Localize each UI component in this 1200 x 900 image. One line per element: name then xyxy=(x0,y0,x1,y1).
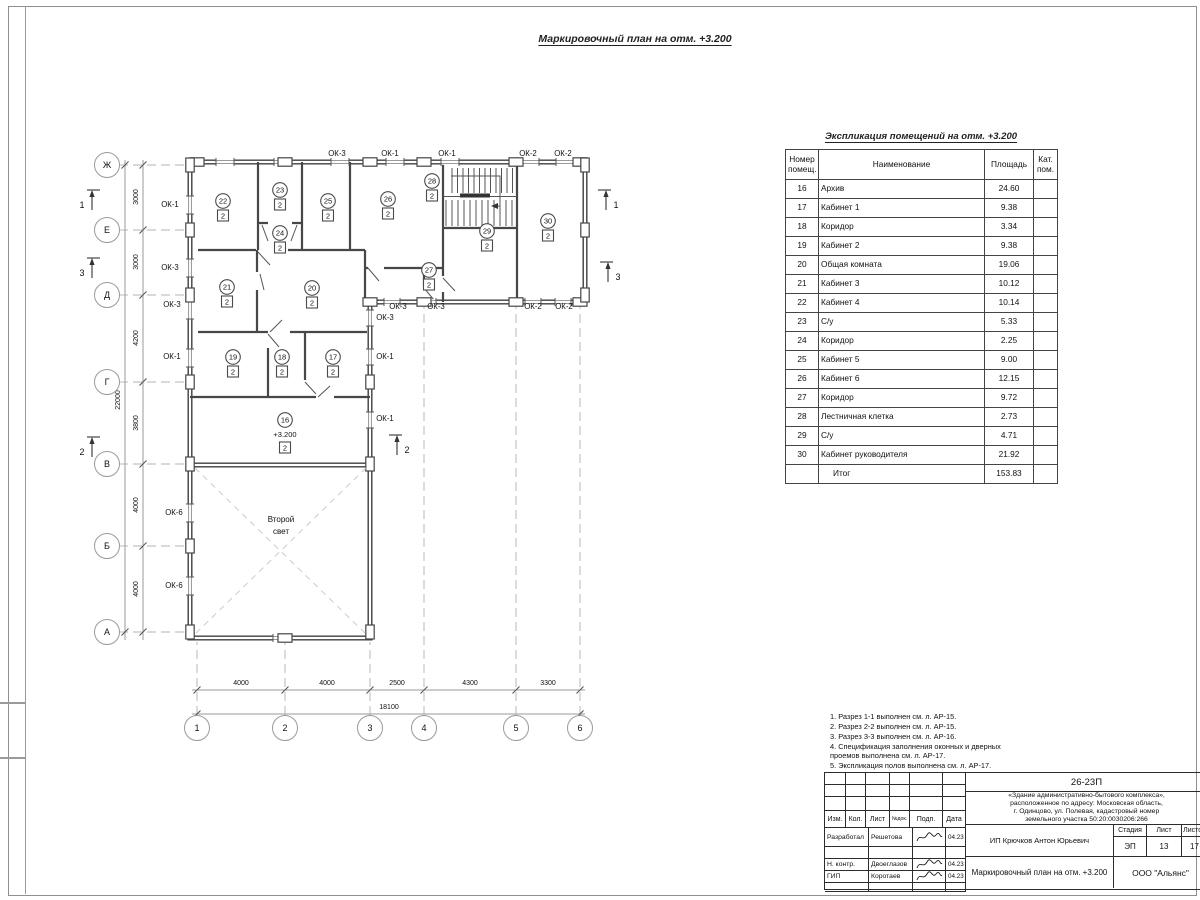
empty-cell xyxy=(866,797,890,811)
table-cell: 9.72 xyxy=(985,389,1034,408)
table-cell: 24 xyxy=(786,332,819,351)
table-row: 18Коридор3.34 xyxy=(786,218,1058,237)
table-cell: 20 xyxy=(786,256,819,275)
table-cell: Кабинет руководителя xyxy=(819,446,985,465)
table-cell: 29 xyxy=(786,427,819,446)
table-cell: 2.25 xyxy=(985,332,1034,351)
table-cell: 22 xyxy=(786,294,819,313)
date-cell xyxy=(946,883,966,892)
signature-cell xyxy=(913,859,946,871)
date-cell: 04.23 xyxy=(946,859,966,871)
signature-icon xyxy=(915,871,943,882)
project-code: 26-23П xyxy=(966,773,1200,792)
table-cell xyxy=(1034,427,1058,446)
table-cell: 9.00 xyxy=(985,351,1034,370)
table-cell xyxy=(1034,370,1058,389)
empty-cell xyxy=(825,785,846,797)
table-cell: 18 xyxy=(786,218,819,237)
explication-table: Номер помещ. Наименование Площадь Кат. п… xyxy=(785,149,1058,484)
empty-cell xyxy=(943,797,966,811)
table-cell: 23 xyxy=(786,313,819,332)
header-cell-number: Номер помещ. xyxy=(786,150,819,180)
stage-label: Стадия xyxy=(1114,825,1147,837)
table-cell: Архив xyxy=(819,180,985,199)
col-izm: Изм. xyxy=(825,811,846,828)
sheets-label: Листов xyxy=(1182,825,1200,837)
empty-cell xyxy=(825,773,846,785)
table-row: 25Кабинет 59.00 xyxy=(786,351,1058,370)
empty-cell xyxy=(943,773,966,785)
title-block-signatures: Изм. Кол. Лист №док. Подп. Дата Разработ… xyxy=(825,773,966,888)
empty-cell xyxy=(866,785,890,797)
stage-value: ЭП xyxy=(1114,837,1147,857)
table-cell xyxy=(1034,199,1058,218)
empty-cell xyxy=(846,773,866,785)
table-cell xyxy=(1034,218,1058,237)
table-cell xyxy=(1034,294,1058,313)
table-cell: Кабинет 4 xyxy=(819,294,985,313)
empty-cell xyxy=(910,797,943,811)
table-cell xyxy=(1034,237,1058,256)
title-block-info: 26-23П «Здание административно-бытового … xyxy=(966,773,1200,888)
table-cell: 19.06 xyxy=(985,256,1034,275)
table-cell xyxy=(786,465,819,484)
table-row: 26Кабинет 612.15 xyxy=(786,370,1058,389)
signature-cell xyxy=(913,828,946,847)
table-cell: 16 xyxy=(786,180,819,199)
table-cell: 19 xyxy=(786,237,819,256)
table-cell: 28 xyxy=(786,408,819,427)
table-row: 23С/у5.33 xyxy=(786,313,1058,332)
header-cell-area: Площадь xyxy=(985,150,1034,180)
table-cell: 24.60 xyxy=(985,180,1034,199)
table-cell: 17 xyxy=(786,199,819,218)
table-cell: Кабинет 6 xyxy=(819,370,985,389)
explication-title: Экспликация помещений на отм. +3.200 xyxy=(785,131,1057,142)
table-row: 28Лестничная клетка2.73 xyxy=(786,408,1058,427)
signature-cell xyxy=(913,883,946,892)
table-cell: 30 xyxy=(786,446,819,465)
empty-cell xyxy=(910,785,943,797)
signature-icon xyxy=(915,859,943,870)
explication: Экспликация помещений на отм. +3.200 Ном… xyxy=(785,131,1057,484)
trim-mark xyxy=(0,757,25,759)
date-cell xyxy=(946,847,966,859)
table-cell xyxy=(1034,313,1058,332)
table-cell: С/у xyxy=(819,427,985,446)
trim-mark xyxy=(0,702,25,704)
title-block: Изм. Кол. Лист №док. Подп. Дата Разработ… xyxy=(824,772,1200,890)
table-row: 19Кабинет 29.38 xyxy=(786,237,1058,256)
name-cell: Решетова xyxy=(869,828,913,847)
empty-cell xyxy=(890,773,910,785)
date-cell: 04.23 xyxy=(946,871,966,883)
col-ndoc: №док. xyxy=(890,811,910,828)
table-cell: 21.92 xyxy=(985,446,1034,465)
table-row: 30Кабинет руководителя21.92 xyxy=(786,446,1058,465)
sheets-total: 17 xyxy=(1182,837,1200,857)
table-row: 27Коридор9.72 xyxy=(786,389,1058,408)
table-cell xyxy=(1034,180,1058,199)
table-cell xyxy=(1034,351,1058,370)
empty-cell xyxy=(910,773,943,785)
table-row: 17Кабинет 19.38 xyxy=(786,199,1058,218)
document-title-cell: Маркировочный план на отм. +3.200 xyxy=(966,857,1114,888)
table-cell: Итог xyxy=(819,465,985,484)
role-cell xyxy=(825,883,869,892)
col-podp: Подп. xyxy=(910,811,943,828)
name-cell xyxy=(869,883,913,892)
table-cell xyxy=(1034,446,1058,465)
signature-cell xyxy=(913,871,946,883)
table-cell: Кабинет 1 xyxy=(819,199,985,218)
role-cell: Н. контр. xyxy=(825,859,869,871)
empty-cell xyxy=(846,797,866,811)
table-row: 22Кабинет 410.14 xyxy=(786,294,1058,313)
signature-icon xyxy=(915,832,943,843)
table-cell xyxy=(1034,389,1058,408)
project-description: «Здание административно-бытового комплек… xyxy=(966,792,1200,825)
table-cell xyxy=(1034,256,1058,275)
table-row: 21Кабинет 310.12 xyxy=(786,275,1058,294)
table-cell: 26 xyxy=(786,370,819,389)
table-cell: С/у xyxy=(819,313,985,332)
table-cell: 3.34 xyxy=(985,218,1034,237)
table-cell xyxy=(1034,408,1058,427)
table-cell: 9.38 xyxy=(985,237,1034,256)
empty-cell xyxy=(943,785,966,797)
table-cell xyxy=(1034,332,1058,351)
table-row: Итог153.83 xyxy=(786,465,1058,484)
table-cell: Коридор xyxy=(819,218,985,237)
name-cell: Коротаев xyxy=(869,871,913,883)
date-cell: 04.23 xyxy=(946,828,966,847)
header-cell-name: Наименование xyxy=(819,150,985,180)
table-cell: Коридор xyxy=(819,332,985,351)
table-cell: 12.15 xyxy=(985,370,1034,389)
sheet-number: 13 xyxy=(1147,837,1182,857)
table-cell xyxy=(1034,465,1058,484)
table-cell: 2.73 xyxy=(985,408,1034,427)
table-cell: 5.33 xyxy=(985,313,1034,332)
table-cell: 27 xyxy=(786,389,819,408)
plan-title: Маркировочный план на отм. +3.200 xyxy=(460,33,810,45)
table-cell: Кабинет 3 xyxy=(819,275,985,294)
table-cell: 10.14 xyxy=(985,294,1034,313)
role-cell xyxy=(825,847,869,859)
table-cell: 21 xyxy=(786,275,819,294)
table-cell: 4.71 xyxy=(985,427,1034,446)
empty-cell xyxy=(890,797,910,811)
company-cell: ООО "Альянс" xyxy=(1114,857,1200,888)
table-cell: 9.38 xyxy=(985,199,1034,218)
table-cell: 25 xyxy=(786,351,819,370)
empty-cell xyxy=(846,785,866,797)
sheet-inner-margin-line xyxy=(25,6,26,894)
table-cell: Коридор xyxy=(819,389,985,408)
name-cell xyxy=(869,847,913,859)
name-cell: Двоеглазов xyxy=(869,859,913,871)
header-cell-category: Кат. пом. xyxy=(1034,150,1058,180)
table-cell: Кабинет 2 xyxy=(819,237,985,256)
role-cell: Разработал xyxy=(825,828,869,847)
drawing-sheet: text{font-family:"Liberation Sans",sans-… xyxy=(0,0,1200,900)
table-cell: Лестничная клетка xyxy=(819,408,985,427)
table-row: 24Коридор2.25 xyxy=(786,332,1058,351)
empty-cell xyxy=(825,797,846,811)
client-cell: ИП Крючков Антон Юрьевич xyxy=(966,825,1114,857)
sheet-label: Лист xyxy=(1147,825,1182,837)
table-cell: Кабинет 5 xyxy=(819,351,985,370)
table-cell: 10.12 xyxy=(985,275,1034,294)
col-kol: Кол. xyxy=(846,811,866,828)
table-cell: Общая комната xyxy=(819,256,985,275)
notes: 1. Разрез 1-1 выполнен см. л. АР-15. 2. … xyxy=(830,712,1080,771)
table-row: 20Общая комната19.06 xyxy=(786,256,1058,275)
signature-cell xyxy=(913,847,946,859)
table-row: 16Архив24.60 xyxy=(786,180,1058,199)
col-list: Лист xyxy=(866,811,890,828)
empty-cell xyxy=(866,773,890,785)
empty-cell xyxy=(890,785,910,797)
table-cell: 153.83 xyxy=(985,465,1034,484)
col-data: Дата xyxy=(943,811,966,828)
table-cell xyxy=(1034,275,1058,294)
table-row: 29С/у4.71 xyxy=(786,427,1058,446)
role-cell: ГИП xyxy=(825,871,869,883)
